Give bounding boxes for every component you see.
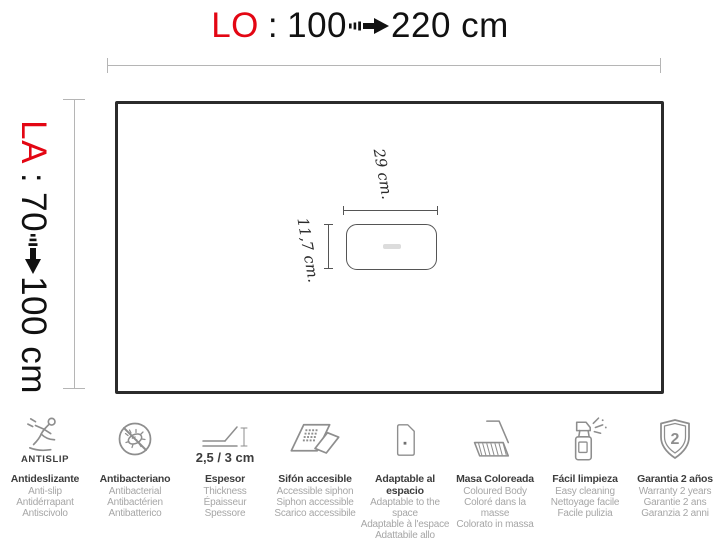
feature-line: Adaptable à l'espace — [361, 519, 450, 530]
width-to-value: 100 cm — [13, 276, 53, 394]
feature-line: Facile pulizia — [557, 508, 612, 519]
feature-line: Antibacterial — [109, 486, 161, 497]
dimension-tick — [63, 388, 85, 389]
length-to-value: 220 cm — [391, 6, 509, 46]
feature-line: Garanzia 2 anni — [641, 508, 709, 519]
width-from-value: 70 — [13, 192, 53, 232]
feature-line: Adattabile allo spazio — [360, 530, 450, 540]
measure-tick — [324, 268, 333, 269]
range-arrow-icon — [25, 234, 41, 274]
feature-title: Sifón accesible — [278, 474, 351, 486]
feature-line: Anti-slip — [28, 486, 62, 497]
colon: : — [268, 6, 278, 46]
feature-title: Masa Coloreada — [456, 474, 534, 486]
feature-line: Thickness — [203, 486, 246, 497]
feature-line: Siphon accessible — [276, 497, 353, 508]
feature-line: Warranty 2 years — [639, 486, 712, 497]
width-range-title: LA : 70 100 cm — [13, 97, 53, 417]
product-diagram: LO : 100 220 cm LA : 70 — [0, 0, 720, 540]
feature-warranty: 2 Garantia 2 años Warranty 2 years Garan… — [630, 410, 720, 540]
feature-title: Antibacteriano — [100, 474, 171, 486]
range-arrow-icon — [349, 18, 389, 34]
thickness-icon: 2,5 / 3 cm — [196, 410, 255, 466]
feature-title: Antideslizante — [11, 474, 79, 486]
feature-line: Scarico accessibile — [274, 508, 355, 519]
warranty-icon: 2 — [650, 410, 700, 466]
width-label: LA — [13, 120, 53, 164]
warranty-years-badge: 2 — [671, 431, 680, 448]
feature-title: Espesor — [205, 474, 245, 486]
feature-adaptable: Adaptable al espacio Adaptable to the sp… — [360, 410, 450, 540]
feature-line: Antibatterico — [109, 508, 162, 519]
dimension-tick — [63, 99, 85, 100]
feature-line: Antiscivolo — [22, 508, 68, 519]
drain-brand-mark — [383, 244, 401, 249]
length-label: LO — [211, 6, 259, 46]
measure-tick — [437, 206, 438, 215]
feature-strip: ANTISLIP Antideslizante Anti-slip Antidé… — [0, 410, 720, 540]
antislip-icon: ANTISLIP — [21, 410, 69, 466]
feature-antislip: ANTISLIP Antideslizante Anti-slip Antidé… — [0, 410, 90, 540]
easy-cleaning-icon — [559, 410, 611, 466]
length-range-title: LO : 100 220 cm — [0, 6, 720, 46]
drain-height-measure-line — [328, 224, 329, 269]
dimension-tick — [660, 58, 661, 73]
antibacterial-icon — [110, 410, 160, 466]
thickness-value: 2,5 / 3 cm — [196, 450, 255, 466]
horizontal-dimension-line — [107, 65, 661, 66]
feature-line: Nettoyage facile — [551, 497, 620, 508]
feature-title: Garantia 2 años — [637, 474, 713, 486]
feature-accessible-siphon: Sifón accesible Accessible siphon Siphon… — [270, 410, 360, 540]
feature-line: Antidérrapant — [16, 497, 73, 508]
feature-antibacterial: Antibacteriano Antibacterial Antibactéri… — [90, 410, 180, 540]
feature-line: Coloured Body — [463, 486, 527, 497]
drain-width-measure-line — [343, 210, 438, 211]
feature-line: Accessible siphon — [277, 486, 354, 497]
feature-title: Fácil limpieza — [552, 474, 617, 486]
feature-title: Adaptable al espacio — [360, 474, 450, 497]
measure-tick — [343, 206, 344, 215]
colored-body-icon — [468, 410, 522, 466]
feature-line: Antibactérien — [107, 497, 163, 508]
feature-line: Coloré dans la masse — [450, 497, 540, 519]
colon: : — [13, 173, 53, 183]
feature-line: Garantie 2 ans — [644, 497, 707, 508]
feature-line: Spessore — [205, 508, 246, 519]
feature-line: Easy cleaning — [555, 486, 615, 497]
feature-colored-body: Masa Coloreada Coloured Body Coloré dans… — [450, 410, 540, 540]
feature-easy-cleaning: Fácil limpieza Easy cleaning Nettoyage f… — [540, 410, 630, 540]
adaptable-icon — [382, 410, 428, 466]
drain-cover — [346, 224, 437, 270]
feature-line: Colorato in massa — [456, 519, 533, 530]
feature-line: Adaptable to the space — [360, 497, 450, 519]
antislip-caption: ANTISLIP — [21, 454, 69, 466]
vertical-dimension-line — [74, 99, 75, 389]
measure-tick — [324, 224, 333, 225]
length-from-value: 100 — [287, 6, 347, 46]
dimension-tick — [107, 58, 108, 73]
accessible-siphon-icon — [286, 410, 344, 466]
feature-line: Épaisseur — [204, 497, 247, 508]
feature-thickness: 2,5 / 3 cm Espesor Thickness Épaisseur S… — [180, 410, 270, 540]
